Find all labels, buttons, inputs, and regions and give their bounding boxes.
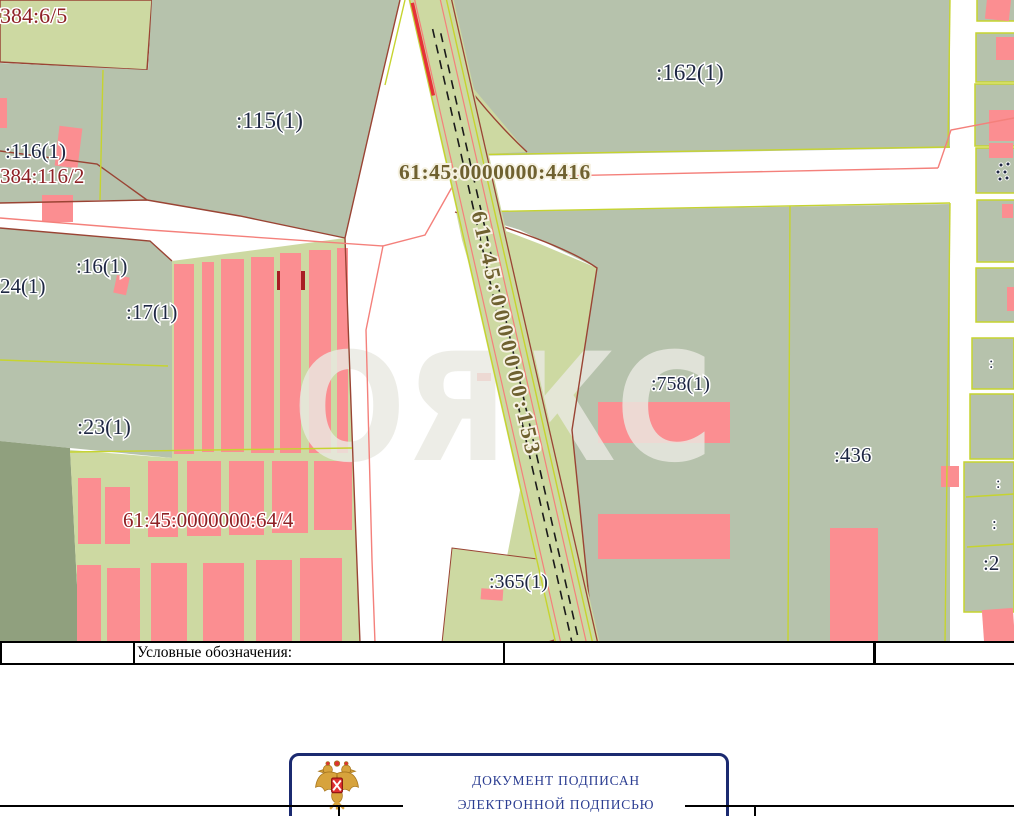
label-cadastral-64-4: 61:45:0000000:64/4 [123,508,294,532]
label-edge-fragment: : [992,514,997,533]
legend-title: Условные обозначения: [137,644,497,662]
table-border [754,806,756,816]
label-116: :116(1) [5,139,66,163]
label-436: :436 [834,443,871,467]
stamp-line1: ДОКУМЕНТ ПОДПИСАН [392,769,720,793]
label-384-6-5: 384:6/5 [0,3,67,28]
cadastral-map-page: ОЯКС [0,0,1014,816]
label-cadastral-4416: 61:45:0000000:4416 [399,160,591,184]
label-edge-fragment: :2 [983,551,999,575]
cadastral-map: ОЯКС [0,0,1014,643]
table-border [0,641,1014,643]
stamp-line2: ЭЛЕКТРОННОЙ ПОДПИСЬЮ [392,793,720,816]
parcel-dark-olive [0,441,80,643]
right-column-parcels [964,0,1014,612]
label-23: :23(1) [77,414,131,439]
table-border [873,641,876,665]
label-384-116-2: 384:116/2 [0,164,84,188]
table-border [133,641,135,665]
label-17: :17(1) [126,300,177,324]
label-16: :16(1) [76,254,127,278]
table-border [0,641,2,665]
table-border [503,641,505,665]
table-border [338,806,340,816]
table-border [0,805,403,807]
label-edge-fragment: : [989,355,993,372]
label-115: :115(1) [236,108,303,133]
label-24: 24(1) [0,274,46,298]
label-162: :162(1) [656,60,724,85]
table-border [685,805,1014,807]
label-edge-fragment: : [996,475,1000,492]
stamp-text: ДОКУМЕНТ ПОДПИСАН ЭЛЕКТРОННОЙ ПОДПИСЬЮ [392,769,720,816]
label-758: :758(1) [651,373,710,395]
rosreestr-eagle-icon [314,759,360,811]
label-365: :365(1) [489,571,548,593]
table-border [0,663,1014,665]
